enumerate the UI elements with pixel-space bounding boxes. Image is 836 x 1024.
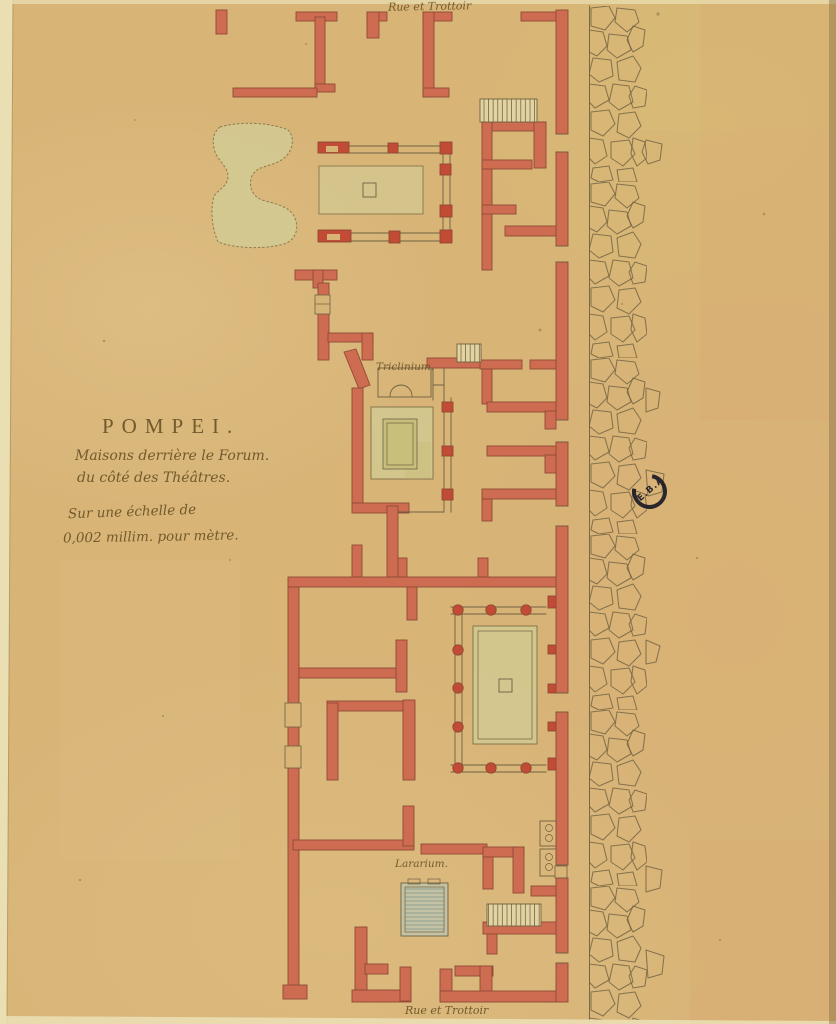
lararium-altar xyxy=(401,879,448,936)
street-label-top: Rue et Trottoir xyxy=(388,0,471,14)
house-walls-middle xyxy=(315,283,563,577)
street-cobblestones xyxy=(589,6,664,1022)
peristyle-pool xyxy=(451,607,546,772)
plan-subtitle-line2: du côté des Théâtres. xyxy=(77,470,230,486)
stairs-bottom xyxy=(487,904,541,926)
plan-title: POMPEI. xyxy=(102,414,240,439)
courtyard-basin xyxy=(371,407,433,479)
scanned-plan-page: Rue et Trottoir POMPEI. Maisons derrière… xyxy=(0,0,836,1024)
stairs-middle xyxy=(457,344,481,362)
street-wall xyxy=(556,10,568,1002)
plan-subtitle-line1: Maisons derrière le Forum. xyxy=(75,448,269,464)
ruined-area-wash xyxy=(212,123,297,247)
scale-note-line2: 0,002 millim. pour mètre. xyxy=(63,527,239,546)
stairs-top xyxy=(480,99,537,122)
room-label-triclinium: Triclinium. xyxy=(376,361,434,373)
street-label-bottom: Rue et Trottoir xyxy=(405,1004,488,1017)
atrium-impluvium xyxy=(318,142,452,243)
room-label-lararium: Lararium. xyxy=(395,858,448,870)
